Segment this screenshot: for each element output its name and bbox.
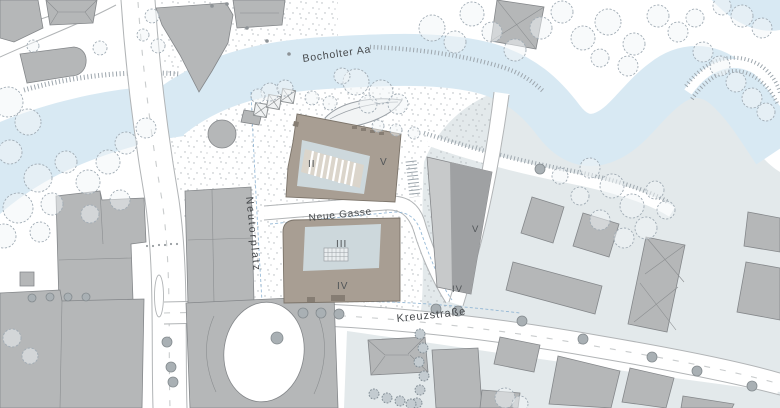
building-oval-block <box>186 296 338 408</box>
building-small-square <box>20 272 34 286</box>
building-south-5 <box>432 348 482 408</box>
building-right-edge-upper <box>744 212 780 252</box>
planter-icon <box>253 102 268 117</box>
label-building-v-east: V <box>472 224 479 235</box>
building-round <box>208 120 236 148</box>
building-hip-house <box>368 337 428 375</box>
bus-bay <box>155 275 164 317</box>
building-top-hip <box>46 0 97 25</box>
label-building-v-center: V <box>380 157 388 168</box>
label-building-iii: III <box>336 239 347 250</box>
label-building-ii: II <box>308 159 316 170</box>
label-building-iv-east: IV <box>452 284 463 295</box>
label-building-iv-center: IV <box>337 281 348 292</box>
building-left-bottom <box>0 290 144 408</box>
building-top-b <box>233 0 285 28</box>
site-plan: Bocholter Aa Neue Gasse Neutorplatz Kreu… <box>0 0 780 408</box>
site-plan-canvas: Bocholter Aa Neue Gasse Neutorplatz Kreu… <box>0 0 780 408</box>
building-neutor-west-block <box>185 187 254 304</box>
